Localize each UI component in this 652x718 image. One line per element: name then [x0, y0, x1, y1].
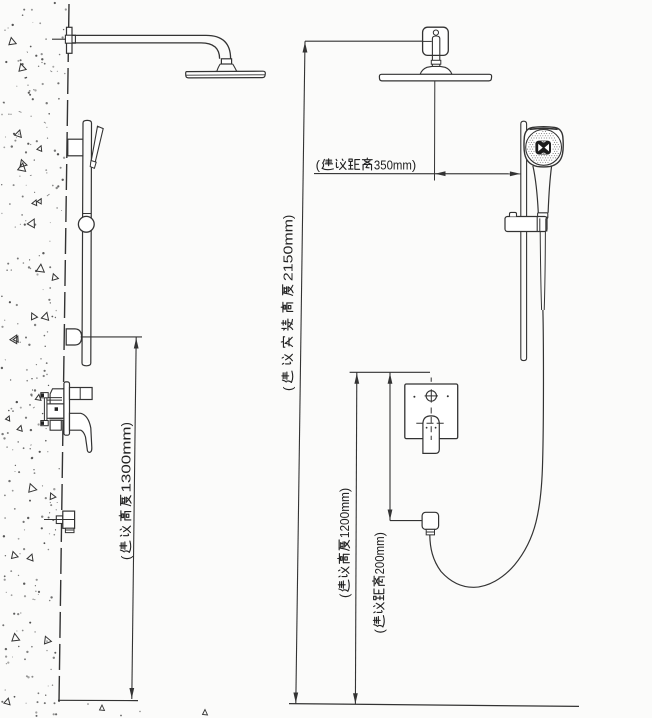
svg-text:(: (: [281, 386, 296, 391]
svg-text:): ): [281, 215, 296, 219]
svg-text:1300mm: 1300mm: [119, 427, 134, 493]
svg-text:): ): [412, 158, 416, 173]
svg-text:(: (: [316, 158, 321, 173]
svg-text:200mm: 200mm: [372, 536, 387, 574]
svg-text:1200mm: 1200mm: [337, 492, 352, 538]
svg-text:2150mm: 2150mm: [281, 219, 296, 281]
svg-text:): ): [372, 532, 387, 536]
svg-text:): ): [119, 422, 134, 426]
svg-text:(: (: [337, 593, 352, 598]
svg-text:): ): [337, 488, 352, 492]
svg-text:350mm: 350mm: [374, 158, 412, 173]
svg-text:(: (: [119, 555, 134, 560]
svg-text:(: (: [372, 629, 387, 634]
